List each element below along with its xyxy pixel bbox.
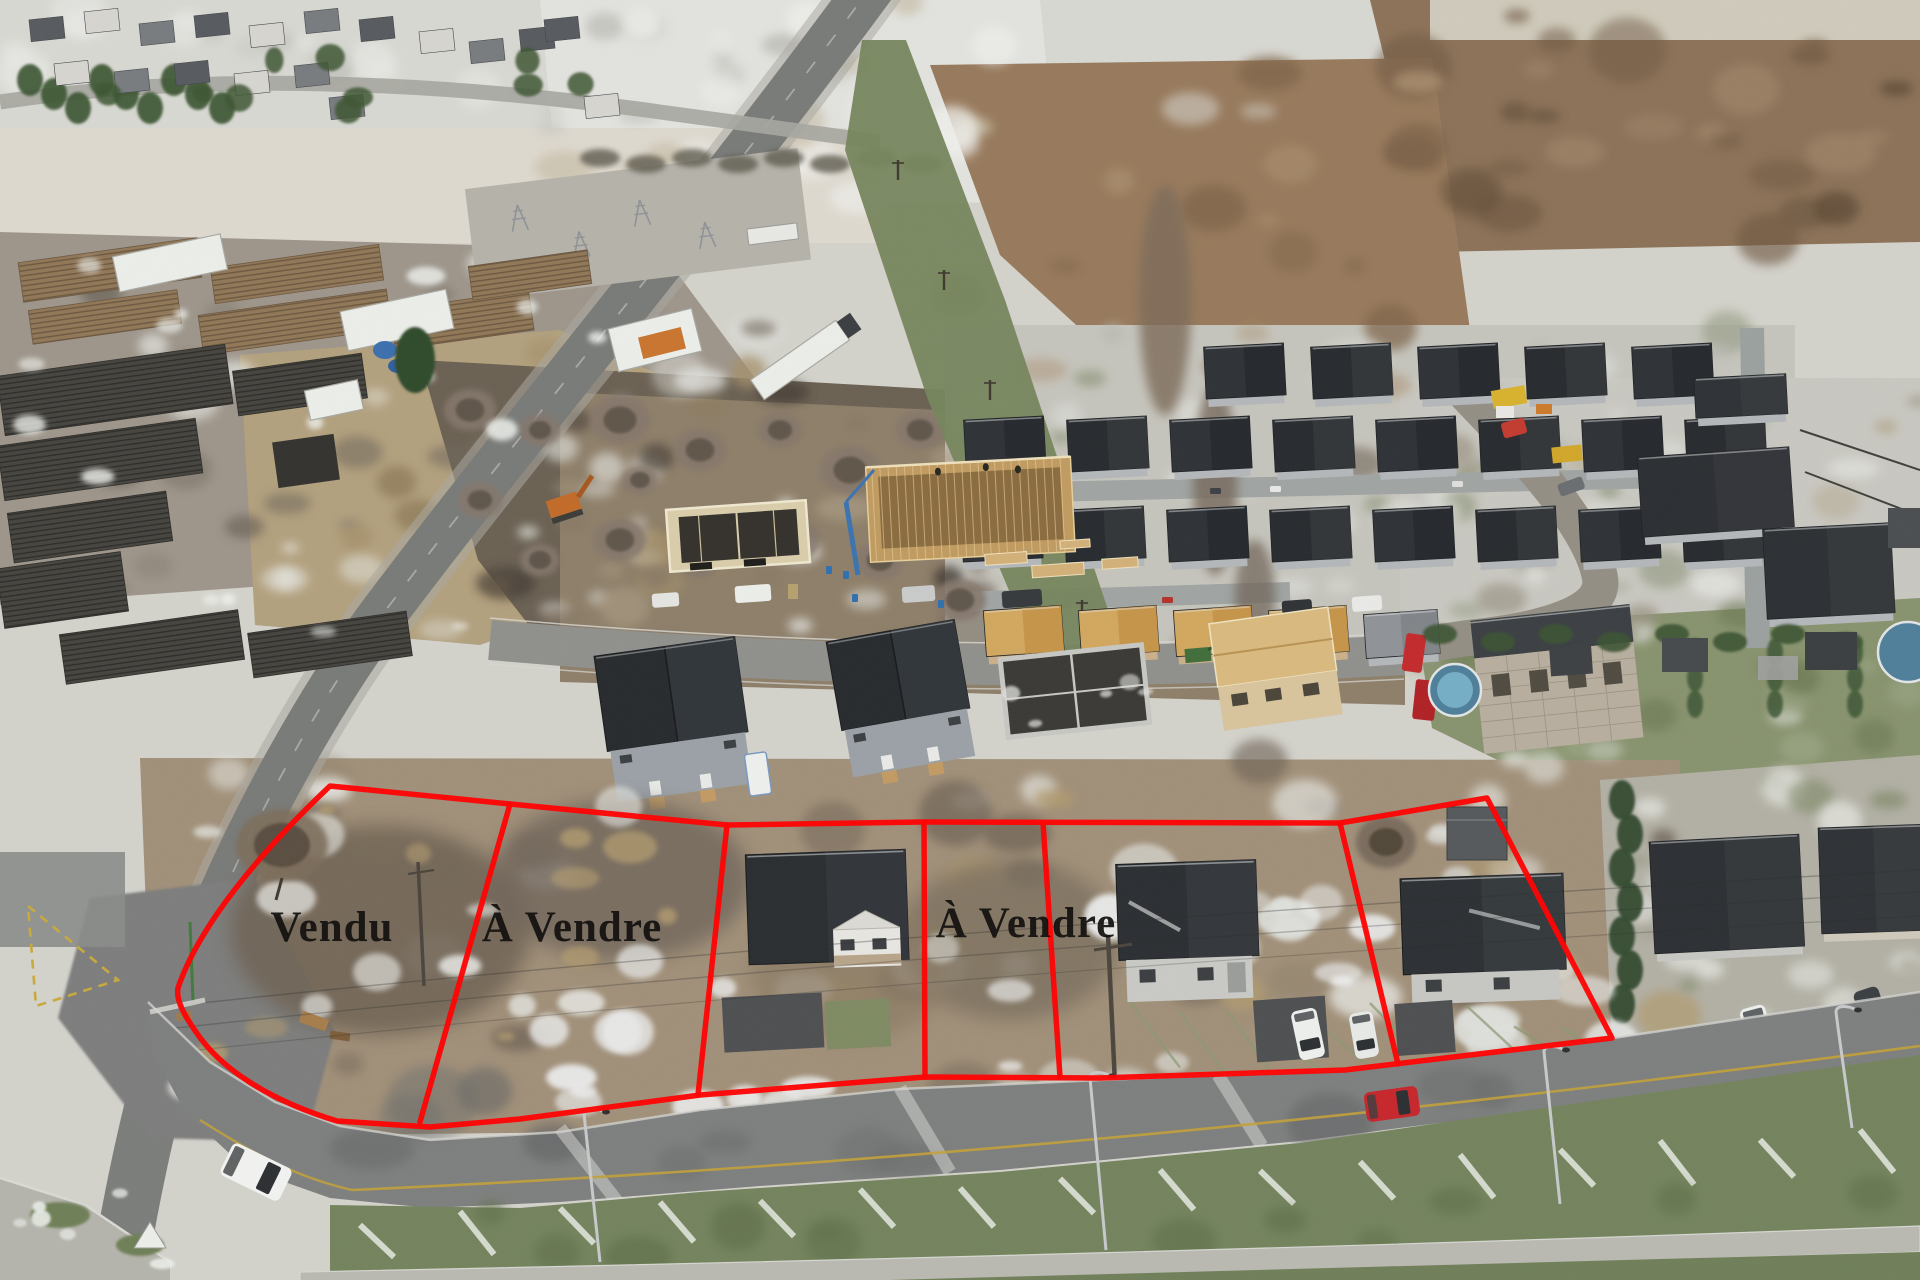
film-grain-overlay [0,0,1920,1280]
aerial-photo: Vendu À Vendre À Vendre [0,0,1920,1280]
aerial-photo-canvas: Vendu À Vendre À Vendre [0,0,1920,1280]
